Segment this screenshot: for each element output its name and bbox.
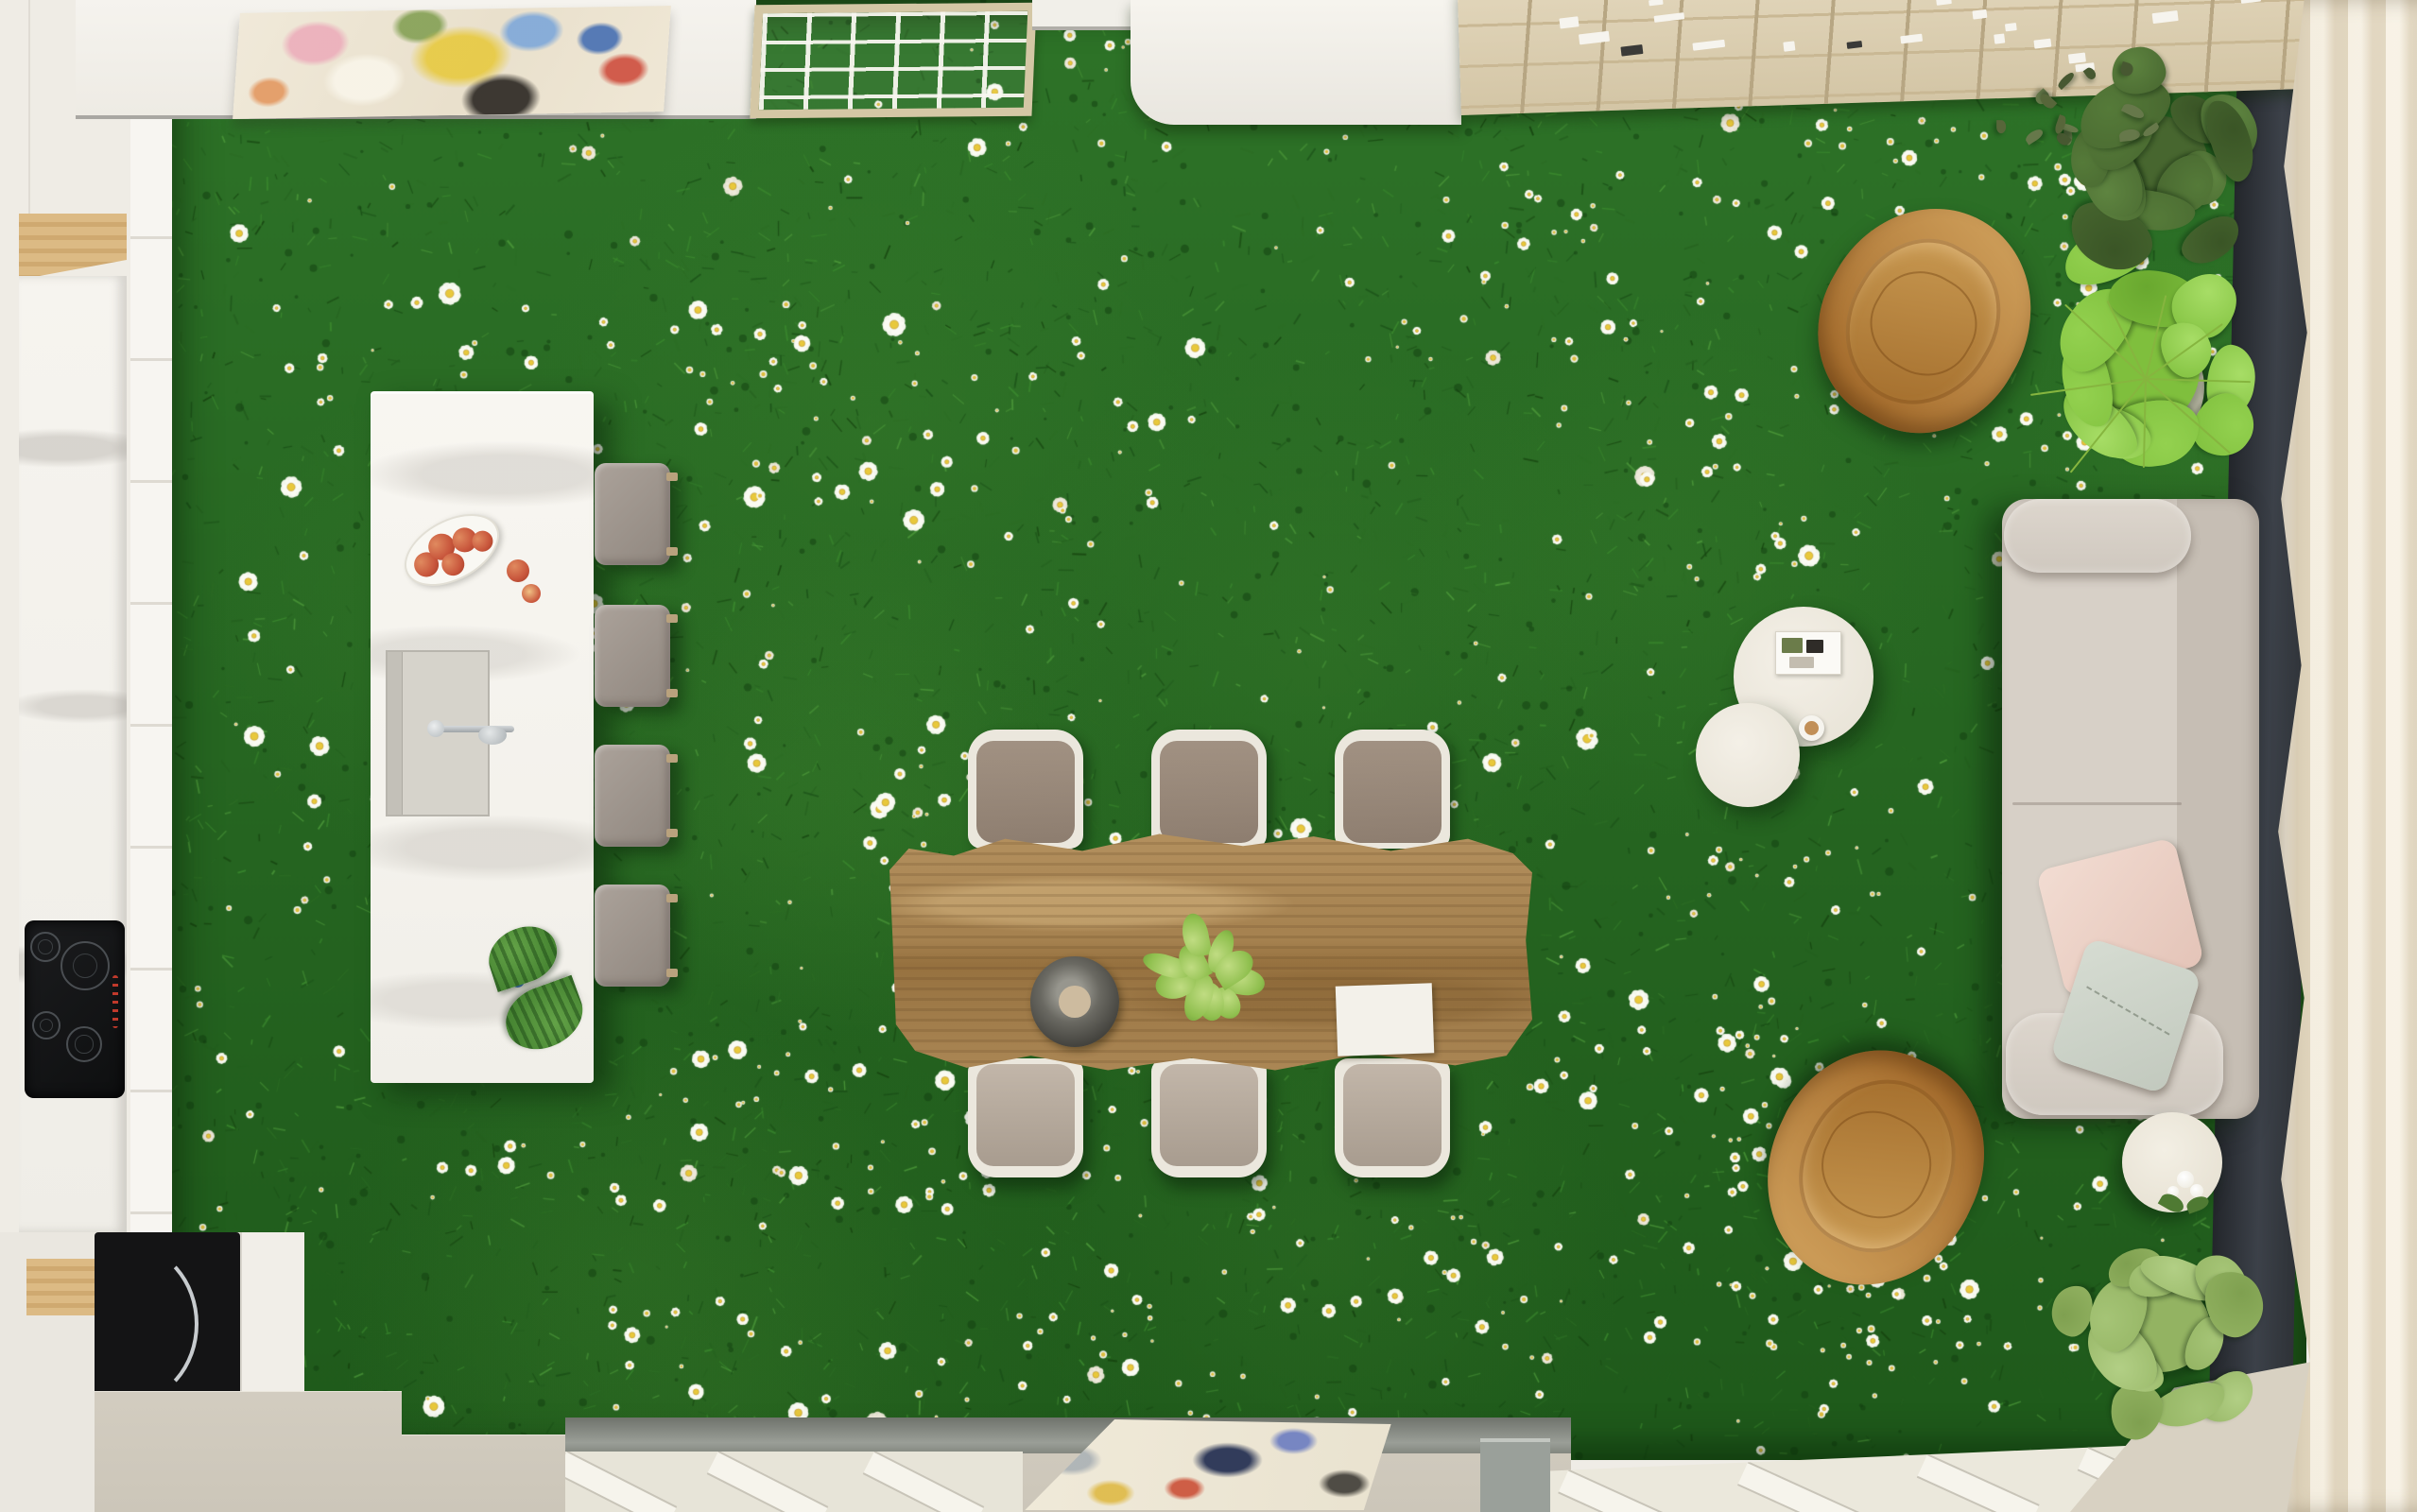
hanging-leaf bbox=[1996, 120, 2006, 133]
shelf-book bbox=[1936, 0, 1951, 6]
chair-cushion bbox=[1343, 741, 1442, 843]
dining-chair bbox=[1151, 730, 1267, 849]
dining-chair bbox=[968, 1058, 1083, 1177]
tiled-wall-strip bbox=[130, 117, 172, 1232]
window-sill-block bbox=[1480, 1438, 1550, 1512]
hanging-leaf bbox=[2024, 127, 2045, 145]
shelf-book bbox=[2034, 39, 2052, 49]
card bbox=[1789, 657, 1814, 668]
stool-leg bbox=[666, 547, 678, 556]
induction-cooktop bbox=[25, 920, 125, 1098]
fruit bbox=[507, 559, 529, 582]
hanging-leaf bbox=[2038, 93, 2057, 112]
hanging-leaf bbox=[2083, 65, 2098, 81]
window-mullion bbox=[565, 1452, 677, 1512]
window-mullion bbox=[863, 1452, 985, 1512]
bottom-window-left bbox=[565, 1452, 1023, 1512]
stool-leg bbox=[666, 894, 678, 902]
burner-large bbox=[60, 941, 110, 990]
burner-small bbox=[30, 932, 60, 962]
coffee-cup bbox=[1799, 715, 1824, 741]
hanging-leaf bbox=[2119, 129, 2142, 143]
hanging-leaf bbox=[2141, 123, 2160, 139]
shelf-book bbox=[1692, 40, 1724, 51]
decor-tray bbox=[1775, 631, 1841, 675]
shelf-book bbox=[1653, 12, 1684, 23]
photo-card bbox=[1782, 638, 1803, 653]
shelf-book bbox=[1973, 9, 1988, 20]
shelf-book bbox=[1559, 16, 1580, 28]
shelf-book bbox=[1846, 41, 1862, 49]
chair-cushion bbox=[1343, 1064, 1442, 1166]
sofa-seam bbox=[2012, 802, 2183, 805]
sink-drainboard bbox=[388, 652, 403, 815]
magazine-text-page bbox=[1336, 986, 1348, 1056]
fiddle-leaf-plant-bottom bbox=[2046, 1225, 2273, 1429]
potted-monstera bbox=[2023, 236, 2269, 501]
small-book bbox=[1806, 640, 1823, 653]
faucet-handle bbox=[427, 720, 444, 737]
burner-medium bbox=[66, 1026, 102, 1062]
chair-cushion bbox=[1160, 741, 1258, 843]
chair-cushion bbox=[976, 1064, 1075, 1166]
table-centerpiece-plant bbox=[1104, 900, 1308, 1056]
window-mullion bbox=[1558, 1469, 1681, 1512]
bar-stool-3 bbox=[595, 745, 670, 847]
shelf-book bbox=[2240, 0, 2260, 3]
white-flower bbox=[2190, 1184, 2203, 1197]
dining-chair bbox=[1151, 1058, 1267, 1177]
bar-stool-2 bbox=[595, 605, 670, 707]
shelf-book bbox=[1901, 34, 1923, 44]
shelf-book bbox=[1649, 0, 1664, 6]
coffee-table-small bbox=[1696, 703, 1800, 807]
stool-leg bbox=[666, 614, 678, 623]
bar-stool-4 bbox=[595, 885, 670, 987]
hanging-leaf bbox=[2121, 101, 2146, 121]
window-mullion bbox=[1917, 1453, 2040, 1512]
wall-section bbox=[1131, 0, 1461, 125]
stool-leg bbox=[666, 969, 678, 977]
window-mullion bbox=[707, 1452, 829, 1512]
abstract-painting bbox=[233, 6, 671, 119]
top-down-room-render: MALDITO bbox=[0, 0, 2417, 1512]
chair-cushion bbox=[976, 741, 1075, 843]
window-track bbox=[565, 1417, 1571, 1453]
dining-chair bbox=[1335, 1058, 1450, 1177]
dining-chair bbox=[968, 730, 1083, 849]
chair-cushion bbox=[1160, 1064, 1258, 1166]
shelf-book bbox=[2005, 23, 2017, 32]
window-mullion bbox=[1737, 1461, 1860, 1512]
oven-handle bbox=[95, 1244, 199, 1404]
hanging-plant bbox=[1993, 60, 2167, 151]
dining-chair bbox=[1335, 730, 1450, 849]
stool-leg bbox=[666, 472, 678, 481]
magazine: MALDITO bbox=[1336, 983, 1435, 1057]
shelf-book bbox=[1620, 44, 1643, 57]
hanging-leaf bbox=[2056, 71, 2076, 90]
side-table bbox=[2122, 1112, 2222, 1212]
hanging-leaf bbox=[2119, 61, 2134, 77]
stool-leg bbox=[666, 689, 678, 697]
shelf-book bbox=[1994, 33, 2005, 43]
faucet bbox=[478, 726, 507, 745]
shelf-book bbox=[2152, 10, 2179, 24]
burner-small bbox=[32, 1011, 60, 1039]
stool-leg bbox=[666, 829, 678, 837]
wood-niche-shelf bbox=[19, 214, 127, 280]
sofa-armrest-top bbox=[2004, 499, 2191, 573]
cooktop-controls bbox=[112, 975, 118, 1028]
shelf-book bbox=[1579, 31, 1610, 45]
fruit-halved bbox=[522, 584, 541, 603]
shelf-book bbox=[1783, 41, 1795, 52]
stool-leg bbox=[666, 754, 678, 763]
skylight-window bbox=[750, 3, 1036, 119]
bar-stool-1 bbox=[595, 463, 670, 565]
wall-section-small bbox=[1032, 0, 1136, 30]
